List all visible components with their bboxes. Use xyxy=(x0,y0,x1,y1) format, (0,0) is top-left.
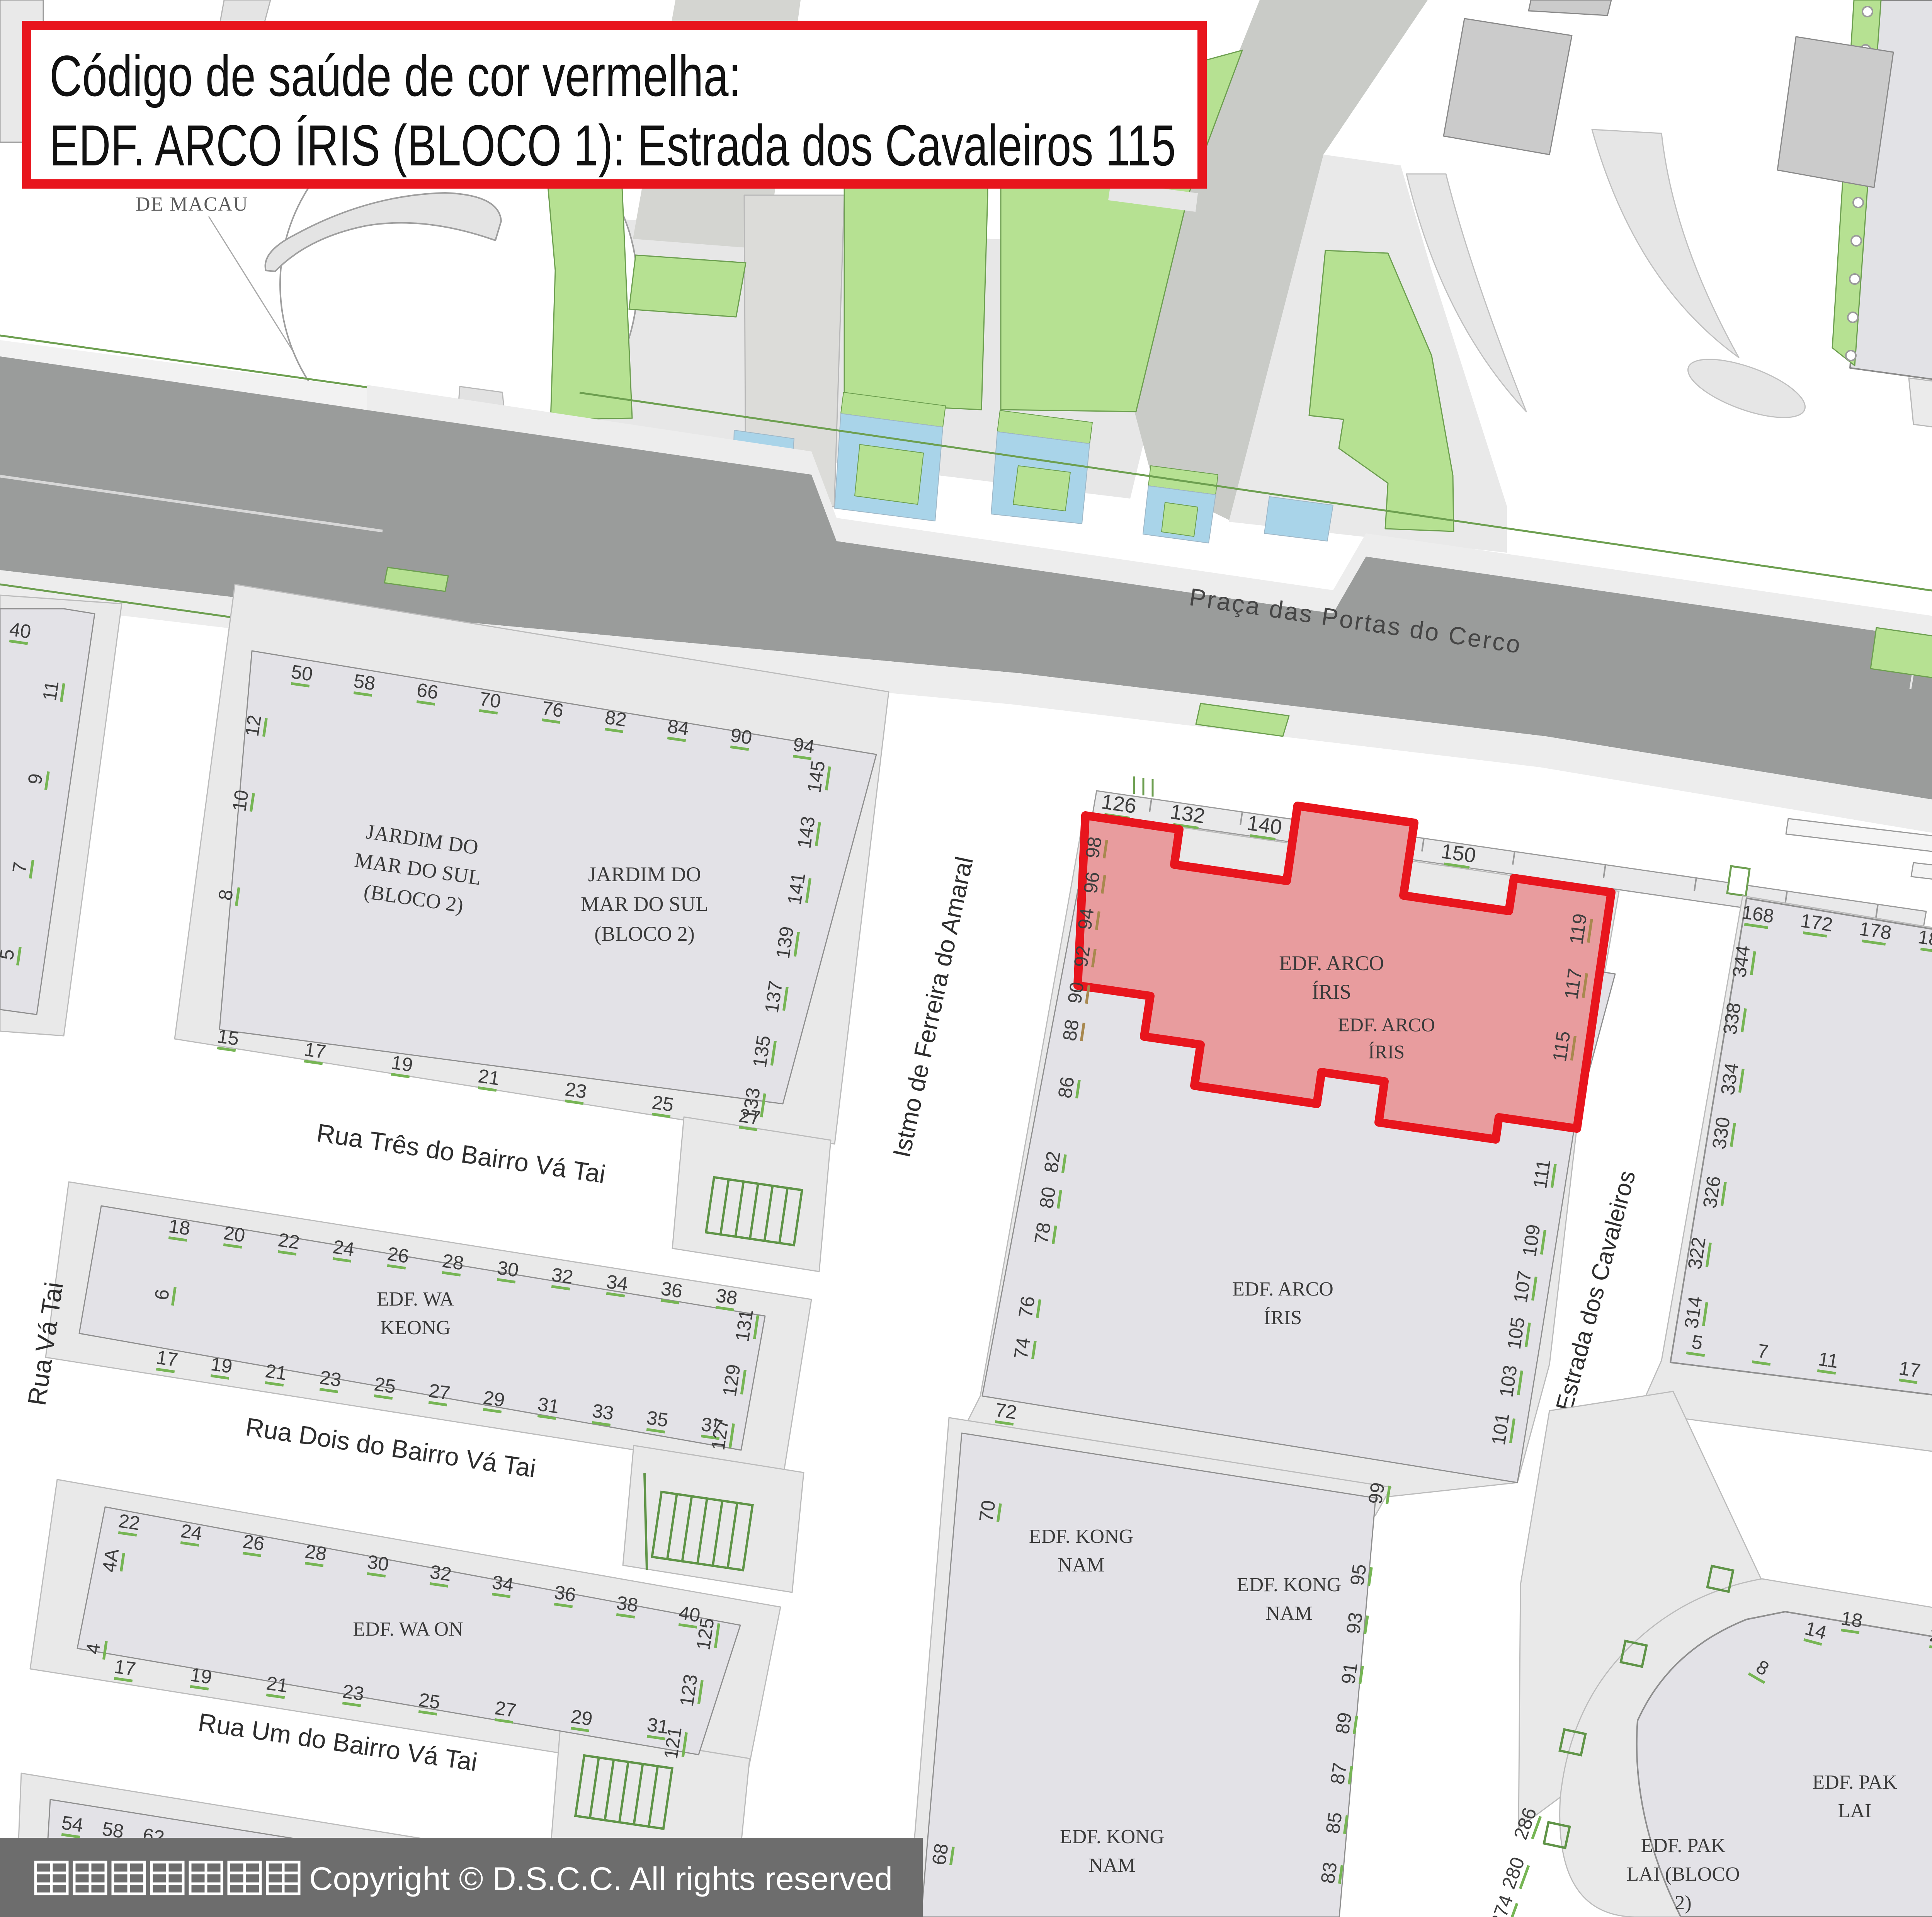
svg-text:28: 28 xyxy=(441,1250,465,1274)
svg-text:17: 17 xyxy=(1898,1357,1922,1381)
svg-text:EDF. WA: EDF. WA xyxy=(377,1288,454,1310)
svg-text:15: 15 xyxy=(216,1025,240,1049)
svg-text:10: 10 xyxy=(228,788,252,813)
svg-text:ÍRIS: ÍRIS xyxy=(1264,1306,1302,1329)
svg-text:33: 33 xyxy=(591,1399,615,1424)
svg-text:54: 54 xyxy=(60,1811,85,1836)
svg-text:18: 18 xyxy=(167,1215,192,1239)
svg-text:11: 11 xyxy=(1817,1348,1840,1372)
svg-text:90: 90 xyxy=(1063,981,1088,1005)
svg-text:58: 58 xyxy=(352,670,377,694)
svg-text:80: 80 xyxy=(1035,1185,1060,1210)
svg-text:19: 19 xyxy=(390,1051,414,1076)
svg-text:23: 23 xyxy=(564,1078,588,1102)
svg-text:25: 25 xyxy=(417,1689,442,1713)
svg-text:MAR DO SUL: MAR DO SUL xyxy=(581,892,708,916)
svg-text:EDF. ARCO: EDF. ARCO xyxy=(1279,952,1384,975)
svg-text:22: 22 xyxy=(117,1510,141,1534)
svg-text:50: 50 xyxy=(290,661,314,685)
svg-text:27: 27 xyxy=(738,1104,762,1129)
svg-text:32: 32 xyxy=(550,1263,575,1288)
svg-text:25: 25 xyxy=(373,1373,397,1397)
svg-text:92: 92 xyxy=(1070,944,1094,969)
svg-text:NAM: NAM xyxy=(1088,1854,1135,1876)
svg-text:17: 17 xyxy=(155,1346,179,1371)
svg-text:KEONG: KEONG xyxy=(380,1317,451,1339)
svg-text:27: 27 xyxy=(493,1697,518,1721)
svg-text:90: 90 xyxy=(729,724,753,748)
svg-text:11: 11 xyxy=(39,679,63,702)
svg-text:94: 94 xyxy=(792,733,816,758)
svg-text:91: 91 xyxy=(1337,1661,1361,1685)
svg-text:19: 19 xyxy=(209,1353,234,1377)
svg-text:70: 70 xyxy=(478,688,502,712)
svg-text:EDF. PAK: EDF. PAK xyxy=(1812,1771,1897,1793)
svg-text:29: 29 xyxy=(570,1705,594,1730)
svg-text:JARDIM DO: JARDIM DO xyxy=(588,863,701,886)
svg-text:111: 111 xyxy=(1529,1158,1554,1190)
svg-text:LAI (BLOCO: LAI (BLOCO xyxy=(1626,1863,1740,1885)
svg-text:82: 82 xyxy=(1040,1150,1064,1174)
svg-text:EDF. KONG: EDF. KONG xyxy=(1060,1826,1164,1848)
svg-text:(BLOCO 2): (BLOCO 2) xyxy=(594,922,694,945)
svg-text:Copyright © D.S.C.C. All right: Copyright © D.S.C.C. All rights reserved xyxy=(309,1861,893,1897)
svg-text:76: 76 xyxy=(541,697,565,721)
svg-text:94: 94 xyxy=(1073,907,1098,931)
svg-text:17: 17 xyxy=(303,1038,327,1062)
svg-text:18: 18 xyxy=(1840,1607,1864,1631)
svg-text:21: 21 xyxy=(265,1672,289,1696)
svg-text:87: 87 xyxy=(1326,1761,1350,1786)
svg-text:20: 20 xyxy=(222,1222,247,1246)
svg-text:EDF. PAK: EDF. PAK xyxy=(1641,1835,1726,1857)
svg-text:EDF. ARCO ÍRIS (BLOCO 1): Estr: EDF. ARCO ÍRIS (BLOCO 1): Estrada dos Ca… xyxy=(49,113,1176,178)
svg-text:EDF. KONG: EDF. KONG xyxy=(1237,1574,1341,1596)
svg-text:99: 99 xyxy=(1364,1481,1388,1505)
svg-text:EDF. ARCO: EDF. ARCO xyxy=(1338,1014,1435,1035)
svg-text:86: 86 xyxy=(1054,1075,1078,1100)
svg-text:27: 27 xyxy=(427,1379,452,1404)
svg-text:12: 12 xyxy=(241,713,265,738)
svg-text:ÍRIS: ÍRIS xyxy=(1312,980,1351,1003)
svg-text:95: 95 xyxy=(1346,1563,1370,1587)
svg-text:25: 25 xyxy=(651,1091,675,1115)
svg-text:19: 19 xyxy=(189,1663,213,1688)
svg-text:21: 21 xyxy=(477,1065,501,1089)
svg-text:Código de saúde de cor vermelh: Código de saúde de cor vermelha: xyxy=(49,43,741,108)
svg-text:22: 22 xyxy=(277,1229,301,1253)
svg-text:70: 70 xyxy=(975,1499,999,1523)
svg-text:34: 34 xyxy=(605,1270,629,1295)
svg-text:4A: 4A xyxy=(98,1547,123,1574)
svg-text:29: 29 xyxy=(482,1386,506,1411)
svg-text:30: 30 xyxy=(366,1551,390,1575)
svg-text:LAI: LAI xyxy=(1838,1800,1872,1822)
svg-text:76: 76 xyxy=(1014,1295,1039,1319)
svg-text:68: 68 xyxy=(928,1842,952,1866)
svg-text:EDF. WA ON: EDF. WA ON xyxy=(353,1618,463,1640)
svg-text:84: 84 xyxy=(666,715,690,739)
svg-text:23: 23 xyxy=(341,1680,366,1704)
svg-text:ÍRIS: ÍRIS xyxy=(1368,1041,1405,1062)
svg-text:24: 24 xyxy=(179,1520,204,1544)
svg-text:26: 26 xyxy=(386,1243,410,1267)
svg-text:36: 36 xyxy=(553,1581,577,1605)
svg-text:26: 26 xyxy=(241,1530,266,1554)
svg-text:74: 74 xyxy=(1010,1336,1034,1360)
svg-text:96: 96 xyxy=(1079,870,1104,895)
svg-text:35: 35 xyxy=(645,1406,670,1431)
svg-text:83: 83 xyxy=(1316,1861,1341,1885)
svg-text:23: 23 xyxy=(318,1366,343,1391)
svg-text:24: 24 xyxy=(332,1236,356,1260)
svg-text:98: 98 xyxy=(1081,835,1105,860)
svg-text:36: 36 xyxy=(660,1277,684,1302)
svg-text:89: 89 xyxy=(1331,1711,1355,1735)
svg-text:82: 82 xyxy=(604,706,628,730)
svg-text:31: 31 xyxy=(536,1393,561,1417)
svg-text:EDF. KONG: EDF. KONG xyxy=(1029,1525,1133,1548)
svg-text:21: 21 xyxy=(264,1360,288,1384)
svg-text:38: 38 xyxy=(615,1592,639,1616)
svg-text:NAM: NAM xyxy=(1265,1602,1312,1624)
svg-text:EDF. ARCO: EDF. ARCO xyxy=(1232,1278,1333,1300)
svg-text:30: 30 xyxy=(496,1256,520,1281)
svg-text:72: 72 xyxy=(994,1399,1018,1423)
svg-text:34: 34 xyxy=(491,1571,515,1595)
svg-text:32: 32 xyxy=(429,1561,453,1585)
svg-text:78: 78 xyxy=(1030,1221,1054,1245)
svg-text:38: 38 xyxy=(714,1284,739,1309)
svg-text:66: 66 xyxy=(415,679,440,703)
svg-text:NAM: NAM xyxy=(1058,1554,1104,1576)
svg-text:85: 85 xyxy=(1321,1811,1346,1835)
svg-text:DE MACAU: DE MACAU xyxy=(136,193,248,215)
svg-text:40: 40 xyxy=(8,618,32,642)
svg-text:93: 93 xyxy=(1342,1611,1366,1635)
svg-text:88: 88 xyxy=(1058,1018,1083,1042)
svg-text:28: 28 xyxy=(304,1540,328,1565)
svg-text:17: 17 xyxy=(113,1655,137,1680)
svg-text:2): 2) xyxy=(1675,1892,1691,1914)
